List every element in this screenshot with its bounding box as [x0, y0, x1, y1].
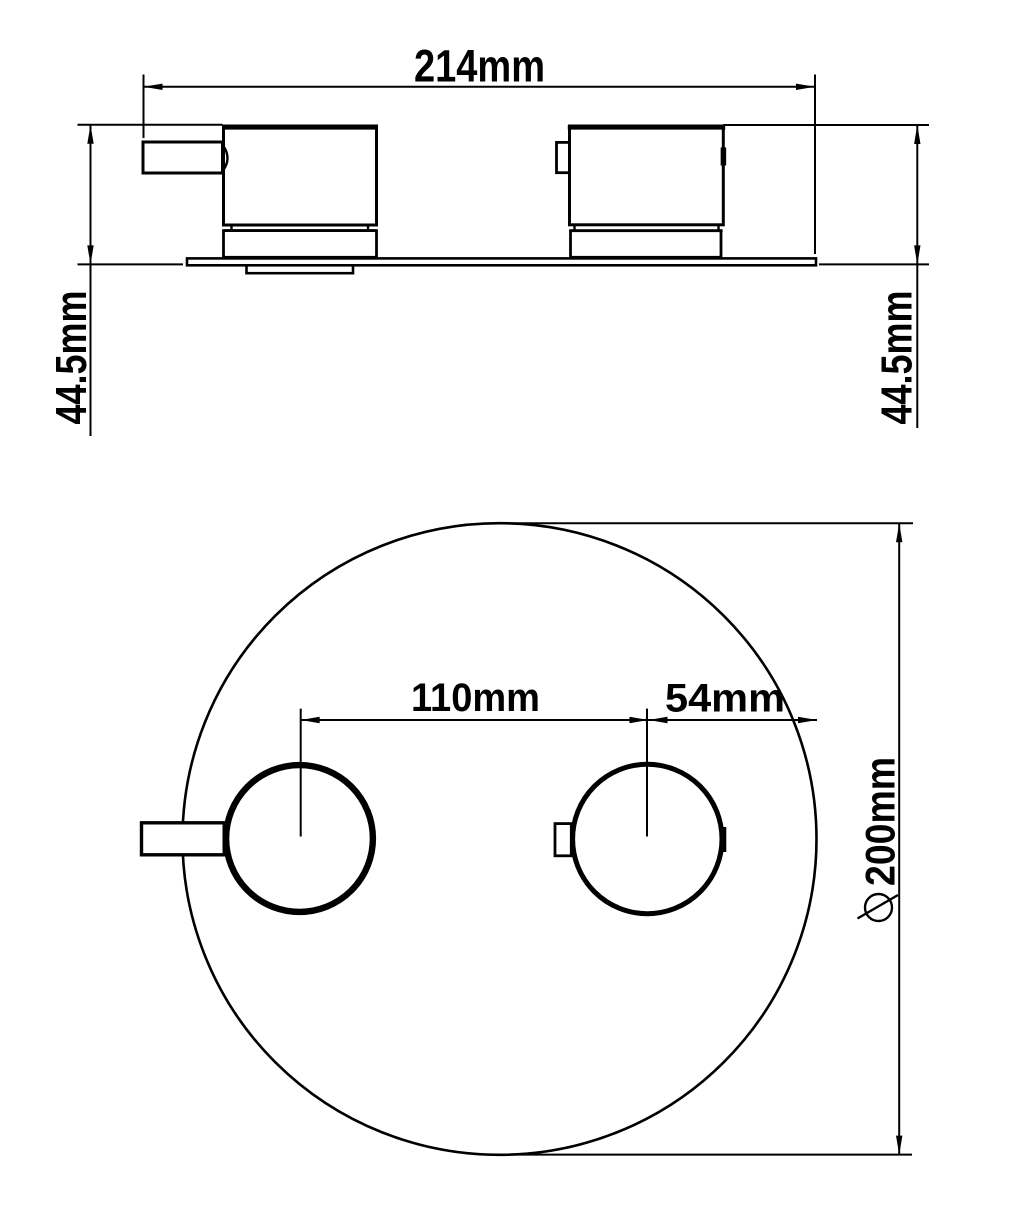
svg-text:110mm: 110mm — [411, 676, 540, 720]
svg-text:54mm: 54mm — [665, 677, 785, 721]
svg-text:44.5mm: 44.5mm — [874, 291, 922, 425]
svg-text:200mm: 200mm — [857, 757, 904, 886]
svg-text:214mm: 214mm — [414, 40, 545, 91]
svg-text:44.5mm: 44.5mm — [48, 291, 96, 425]
